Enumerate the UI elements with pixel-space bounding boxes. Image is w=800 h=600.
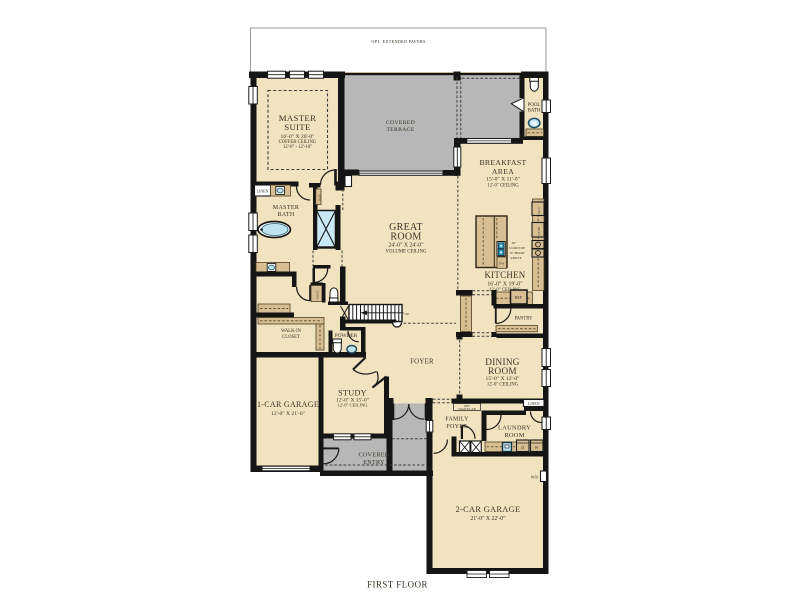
svg-text:36": 36"	[512, 241, 517, 245]
svg-text:BATH: BATH	[277, 212, 294, 218]
svg-text:15'-0" X 12'-0": 15'-0" X 12'-0"	[486, 376, 520, 382]
svg-text:KITCHEN: KITCHEN	[484, 270, 525, 280]
svg-text:DW: DW	[499, 262, 504, 266]
svg-text:ROOM: ROOM	[504, 432, 524, 439]
svg-text:LAUNDRY: LAUNDRY	[498, 425, 531, 432]
svg-text:TERRACE: TERRACE	[386, 127, 414, 133]
svg-text:COVERED: COVERED	[386, 120, 415, 126]
svg-text:1-CAR GARAGE: 1-CAR GARAGE	[257, 400, 319, 409]
svg-text:UP: UP	[405, 312, 410, 316]
svg-text:24'-0" X 24'-0": 24'-0" X 24'-0"	[388, 243, 423, 249]
svg-text:16'-0" X 20'-0": 16'-0" X 20'-0"	[281, 134, 315, 140]
svg-text:LINEN: LINEN	[528, 402, 540, 406]
svg-text:12'-0" CEILING: 12'-0" CEILING	[487, 383, 519, 388]
svg-text:MASTER: MASTER	[273, 205, 300, 211]
svg-text:AREA: AREA	[492, 167, 514, 176]
svg-text:2-CAR GARAGE: 2-CAR GARAGE	[456, 505, 521, 514]
svg-text:ABOVE: ABOVE	[510, 256, 522, 260]
svg-text:MICRO: MICRO	[537, 227, 540, 236]
svg-text:LINEN: LINEN	[316, 291, 320, 301]
svg-text:SEAT: SEAT	[317, 194, 321, 201]
svg-text:FAMILY: FAMILY	[445, 417, 469, 423]
svg-text:W: W	[535, 445, 539, 450]
svg-text:REF.: REF.	[515, 296, 523, 300]
svg-text:W/H: W/H	[531, 475, 539, 479]
svg-text:VOLUME CEILING: VOLUME CEILING	[386, 249, 427, 254]
svg-text:CLOSET: CLOSET	[282, 335, 300, 340]
svg-text:COVERED: COVERED	[359, 453, 390, 459]
svg-text:OPT. EXTENDED PAVERS: OPT. EXTENDED PAVERS	[371, 39, 426, 44]
svg-text:FOYER: FOYER	[447, 424, 468, 430]
svg-text:12'-0" CEILING: 12'-0" CEILING	[337, 402, 368, 407]
svg-text:15'-0" X 11'-0": 15'-0" X 11'-0"	[486, 177, 520, 183]
svg-text:POOL: POOL	[528, 103, 541, 108]
svg-text:ROOM: ROOM	[390, 232, 421, 243]
svg-text:12'-0" X 21'-0": 12'-0" X 21'-0"	[271, 411, 305, 417]
svg-text:ENTRY: ENTRY	[363, 460, 385, 466]
svg-text:LINEN: LINEN	[257, 189, 269, 193]
svg-text:12'-0" CEILING: 12'-0" CEILING	[489, 288, 522, 293]
svg-text:VALET/CAB: VALET/CAB	[458, 407, 475, 411]
svg-text:POWDER: POWDER	[335, 333, 358, 339]
svg-text:ROOM: ROOM	[488, 366, 517, 376]
svg-text:12'-0" CEILING: 12'-0" CEILING	[487, 184, 519, 189]
svg-text:21'-0" X 22'-0": 21'-0" X 22'-0"	[470, 516, 505, 522]
svg-text:WALK-IN: WALK-IN	[281, 329, 302, 334]
svg-text:BATH: BATH	[528, 109, 541, 114]
svg-text:16'-0" X 19'-0": 16'-0" X 19'-0"	[487, 281, 522, 287]
svg-text:SUITE: SUITE	[284, 122, 310, 132]
svg-text:BREAKFAST: BREAKFAST	[480, 158, 527, 167]
svg-text:FOYER: FOYER	[410, 359, 434, 366]
svg-text:PANTRY: PANTRY	[514, 317, 533, 322]
svg-text:STUDY: STUDY	[338, 389, 367, 398]
svg-text:12'-0" - 12'-10": 12'-0" - 12'-10"	[283, 145, 312, 150]
svg-text:D: D	[521, 445, 524, 450]
svg-text:W/ HOOD: W/ HOOD	[510, 251, 525, 255]
svg-text:FIRST FLOOR: FIRST FLOOR	[367, 580, 428, 590]
svg-text:OVEN: OVEN	[537, 207, 540, 215]
svg-text:COOKTOP: COOKTOP	[509, 246, 525, 250]
